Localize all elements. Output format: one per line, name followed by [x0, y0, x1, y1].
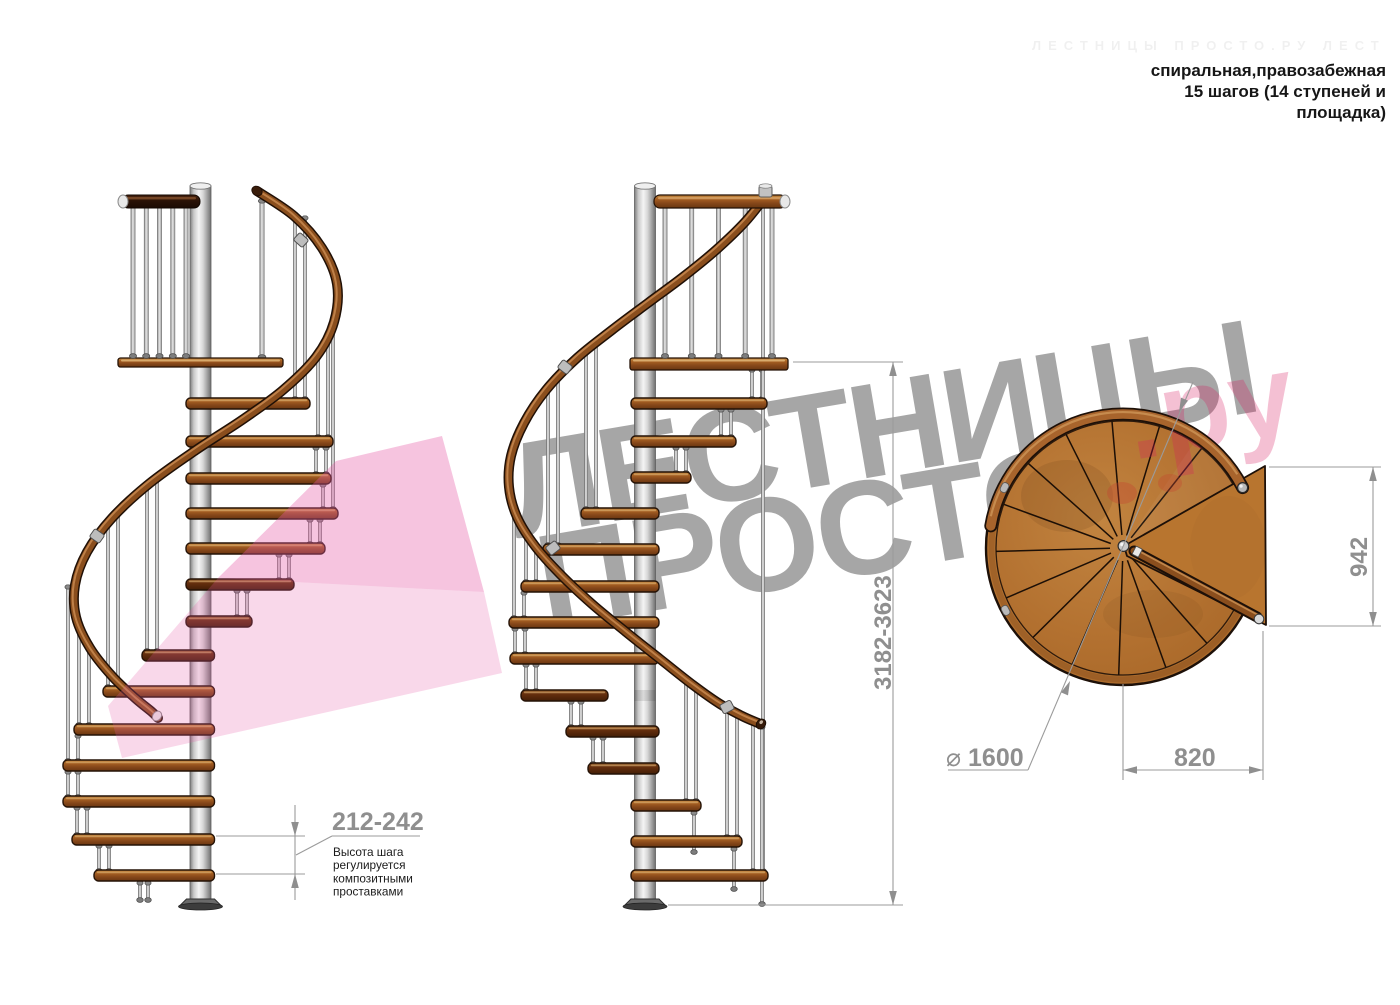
svg-text:⌀ 1600: ⌀ 1600 — [946, 744, 1024, 772]
svg-text:Высота шагарегулируетсякомпози: Высота шагарегулируетсякомпозитнымипрост… — [333, 845, 413, 899]
svg-text:820: 820 — [1174, 744, 1216, 772]
svg-text:942: 942 — [1346, 537, 1373, 577]
svg-text:3182-3623: 3182-3623 — [870, 575, 897, 690]
svg-text:212-242: 212-242 — [332, 808, 424, 836]
svg-text:ЛЕСТНИЦЫ ПРОСТО.РУ ЛЕСТ: ЛЕСТНИЦЫ ПРОСТО.РУ ЛЕСТ — [1032, 38, 1386, 53]
